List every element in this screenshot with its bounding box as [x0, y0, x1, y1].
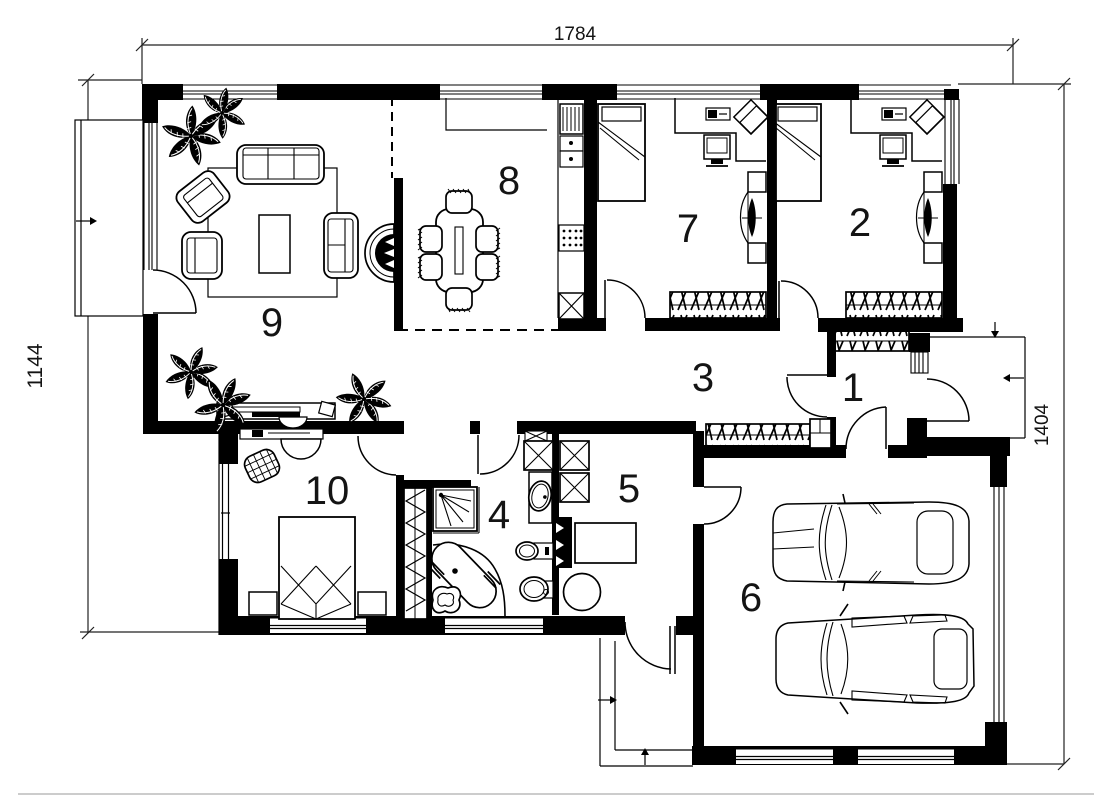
svg-text:6: 6: [740, 576, 762, 620]
svg-text:8: 8: [498, 159, 520, 203]
svg-text:9: 9: [261, 301, 283, 345]
svg-text:10: 10: [305, 469, 350, 513]
svg-text:4: 4: [488, 493, 510, 537]
svg-text:2: 2: [849, 201, 871, 245]
svg-text:1144: 1144: [24, 343, 47, 388]
svg-text:7: 7: [677, 207, 699, 251]
svg-text:1784: 1784: [554, 24, 597, 45]
svg-text:1: 1: [842, 366, 864, 410]
svg-text:3: 3: [692, 356, 714, 400]
svg-text:5: 5: [618, 467, 640, 511]
svg-text:1404: 1404: [1032, 403, 1053, 446]
